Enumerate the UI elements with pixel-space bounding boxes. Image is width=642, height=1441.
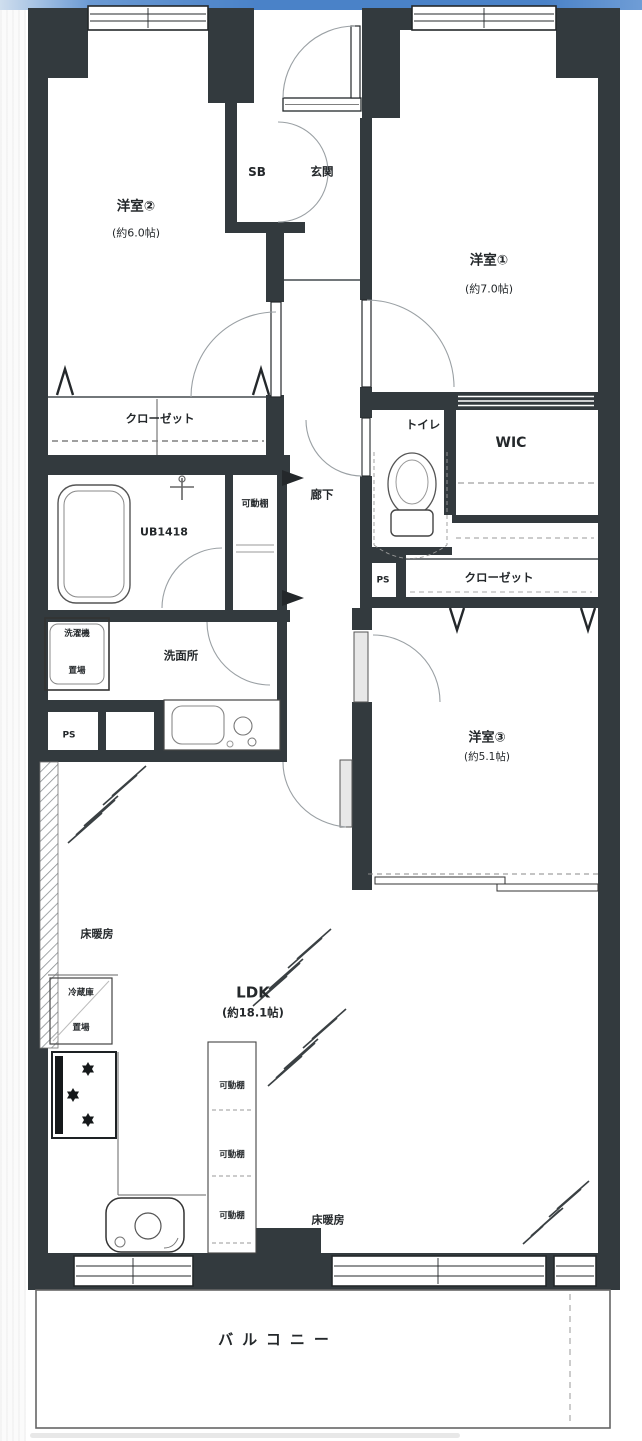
washroom-door-arc — [207, 622, 270, 685]
diagonal-mark-group — [523, 1181, 589, 1244]
window-room2-top — [88, 6, 208, 30]
shelf-arrow-icon — [282, 470, 304, 486]
room-label-entrance: 玄関 — [311, 166, 334, 178]
label-floor-heating-2: 床暖房 — [312, 1215, 345, 1226]
size-label-ldk: (約18.1帖) — [222, 1007, 284, 1019]
label-fridge-1: 冷蔵庫 — [68, 989, 94, 998]
room-label-closet-east: クローゼット — [465, 572, 534, 584]
window-ldk-bottom — [332, 1256, 546, 1286]
entrance-door — [283, 26, 361, 111]
toilet-door — [306, 418, 370, 476]
size-label-yoshitsu2: (約6.0帖) — [112, 228, 160, 239]
room-label-ldk: LDK — [236, 986, 270, 1001]
room-label-shoebox: SB — [248, 166, 266, 178]
balcony-outline — [36, 1290, 610, 1428]
room-label-yoshitsu1: 洋室① — [470, 254, 508, 268]
label-movable-shelf-k3: 可動棚 — [219, 1212, 245, 1221]
bath-door-arc — [162, 548, 222, 608]
hanger-icon — [581, 608, 595, 630]
shelf-arrow-icon — [282, 590, 304, 606]
room1-door — [362, 300, 454, 387]
room-label-yoshitsu3: 洋室③ — [468, 732, 505, 745]
label-floor-heating-1: 床暖房 — [81, 929, 114, 940]
room2-door — [191, 302, 281, 397]
room-label-wic: WIC — [496, 436, 527, 450]
kitchen-shelf-column — [208, 1042, 256, 1253]
room-label-hallway: 廊下 — [311, 489, 334, 501]
bathtub-icon — [58, 485, 130, 603]
label-unit-bath: UB1418 — [140, 527, 188, 538]
stove-icon — [52, 1052, 116, 1138]
label-balcony: バルコニー — [218, 1333, 338, 1348]
kitchen-sink-icon — [106, 1198, 184, 1252]
window-kitchen-bottom — [74, 1256, 193, 1286]
vanity-icon — [164, 700, 280, 750]
room3-ldk-sliding-door — [368, 874, 598, 891]
label-ps-right: PS — [376, 577, 389, 586]
toilet-icon — [374, 452, 447, 559]
room-label-closet-west: クローゼット — [126, 413, 195, 425]
label-washer-1: 洗濯機 — [64, 630, 90, 639]
diagonal-marks — [68, 766, 589, 1244]
size-label-yoshitsu1: (約7.0帖) — [465, 284, 513, 295]
label-ps-left: PS — [62, 732, 75, 741]
room-label-yoshitsu2: 洋室② — [117, 200, 155, 214]
ldk-door — [283, 760, 352, 827]
label-fridge-2: 置場 — [72, 1024, 89, 1033]
diagonal-mark-group — [268, 1009, 346, 1086]
hanger-icon — [253, 369, 269, 395]
room3-door — [354, 632, 440, 702]
storage-marks — [52, 369, 595, 1253]
label-washer-2: 置場 — [68, 667, 85, 676]
hanger-icon — [450, 608, 464, 630]
hanger-icon — [57, 369, 73, 395]
floor-plan: 洋室② (約6.0帖) 洋室① (約7.0帖) SB 玄関 クローゼット 廊下 … — [0, 0, 642, 1441]
room-label-washroom: 洗面所 — [164, 650, 199, 662]
shower-icon — [170, 476, 194, 500]
label-movable-shelf-k1: 可動棚 — [219, 1082, 245, 1091]
room-label-toilet: トイレ — [406, 419, 441, 431]
label-movable-shelf-k2: 可動棚 — [219, 1151, 245, 1160]
diagonal-mark-group — [68, 766, 146, 843]
size-label-yoshitsu3: (約5.1帖) — [464, 752, 510, 763]
window-room1-top — [412, 6, 556, 30]
window-ldk-bottom-right — [554, 1256, 596, 1286]
hatched-wall-strip — [40, 762, 58, 1048]
label-movable-shelf-bath: 可動棚 — [241, 501, 268, 510]
